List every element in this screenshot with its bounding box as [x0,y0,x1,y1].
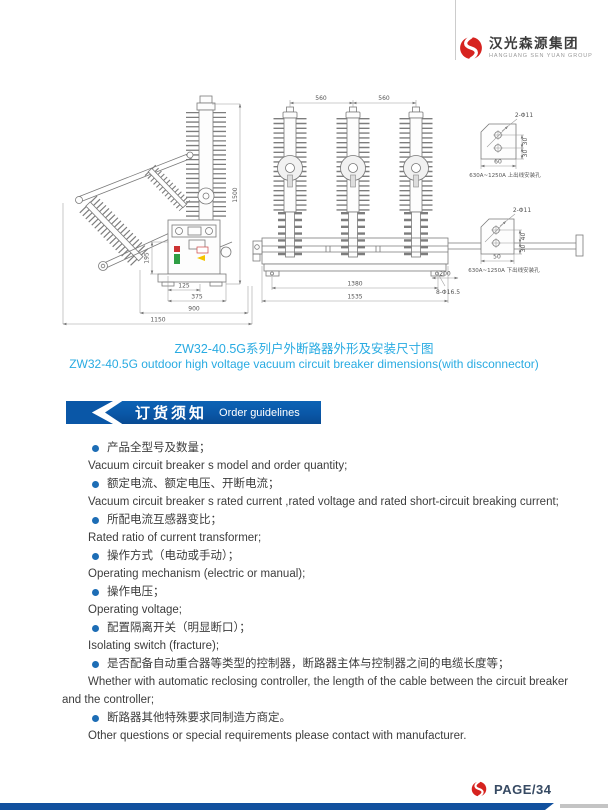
footer-bar-gray [560,804,608,808]
detail-bottom-plate: 2-Φ11 50 40 30 630A~1250A 下出线安装孔 [468,207,540,274]
brand-mark-icon [471,781,487,797]
bullet-icon [92,481,99,488]
dim-label: 900 [188,306,200,313]
figure-caption: ZW32-40.5G系列户外断路器外形及安装尺寸图 ZW32-40.5G out… [0,342,608,372]
dim-label: 2-Φ11 [515,112,534,119]
dim-label: 195 [144,252,151,264]
guideline-text-cn: 断路器其他特殊要求同制造方商定。 [107,709,291,727]
dim-label: 50 [493,254,501,261]
guideline-item-en: Operating mechanism (electric or manual)… [62,565,594,583]
guideline-item-cn: 额定电流、额定电压、开断电流； [62,475,594,493]
section-title-cn: 订货须知 [135,402,207,423]
dim-label: 1535 [347,294,362,301]
dim-label: 30 [520,245,527,253]
guideline-item-cn: 是否配备自动重合器等类型的控制器，断路器主体与控制器之间的电缆长度等； [62,655,594,673]
guideline-item-en: Whether with automatic reclosing control… [62,673,594,709]
detail-bottom-caption: 630A~1250A 下出线安装孔 [468,266,540,274]
guideline-item-en: Isolating switch (fracture); [62,637,594,655]
dim-label: 560 [378,95,390,102]
bullet-icon [92,715,99,722]
mechanism-box [168,220,232,274]
dim-label: 1500 [232,187,239,202]
figure-caption-cn: ZW32-40.5G系列户外断路器外形及安装尺寸图 [0,342,608,357]
guideline-item-en: Vacuum circuit breaker s model and order… [62,457,594,475]
guideline-text-cn: 额定电流、额定电压、开断电流； [107,475,280,493]
dim-label: 40 [520,233,527,241]
bullet-icon [92,553,99,560]
guideline-item-cn: 操作方式（电动或手动）； [62,547,594,565]
dim-label: 200 [439,271,451,278]
dim-label: 1150 [150,317,165,324]
guideline-text-cn: 是否配备自动重合器等类型的控制器，断路器主体与控制器之间的电缆长度等； [107,655,510,673]
front-view-dimensions: 1380 1535 200 8-Φ16.5 [262,266,460,303]
guideline-item-cn: 所配电流互感器变比； [62,511,594,529]
footer-bar-blue [0,803,554,810]
dim-label: 125 [178,283,190,290]
bullet-icon [92,517,99,524]
bullet-icon [92,445,99,452]
bullet-icon [92,589,99,596]
dim-label: 375 [191,294,203,301]
dim-label: 60 [494,159,502,166]
dim-label: 30 [522,150,529,158]
guideline-item-en: Other questions or special requirements … [62,727,594,745]
bullet-icon [92,661,99,668]
dim-label: 1380 [347,281,362,288]
dim-label: 560 [315,95,327,102]
footer-page-badge: PAGE/34 [471,781,551,797]
page-number: PAGE/34 [494,782,551,797]
side-view: 125 375 900 1150 195 1500 [63,96,252,324]
catalog-page: 汉光森源集团 HANGUANG SEN YUAN GROUP [0,0,608,810]
dim-label: 8-Φ16.5 [436,289,460,296]
guideline-item-en: Rated ratio of current transformer; [62,529,594,547]
guideline-text-cn: 操作方式（电动或手动）； [107,547,239,565]
detail-top-caption: 630A~1250A 上出线安装孔 [469,171,541,179]
dim-label: 30 [522,138,529,146]
guideline-text-cn: 操作电压； [107,583,165,601]
figure-caption-en: ZW32-40.5G outdoor high voltage vacuum c… [0,357,608,372]
guideline-item-cn: 配置隔离开关（明显断口）； [62,619,594,637]
dim-label: 2-Φ11 [513,207,532,214]
guidelines-list: 产品全型号及数量； Vacuum circuit breaker s model… [62,439,594,745]
guideline-text-cn: 所配电流互感器变比； [107,511,222,529]
guideline-text-cn: 配置隔离开关（明显断口）； [107,619,251,637]
guideline-text-cn: 产品全型号及数量； [107,439,211,457]
bullet-icon [92,625,99,632]
section-title-en: Order guidelines [219,407,300,419]
guideline-item-cn: 操作电压； [62,583,594,601]
detail-top-plate: 2-Φ11 60 30 30 630A~1250A 上出线安装孔 [469,112,541,179]
guideline-item-cn: 产品全型号及数量； [62,439,594,457]
guideline-item-en: Vacuum circuit breaker s rated current ,… [62,493,594,511]
guideline-item-en: Operating voltage; [62,601,594,619]
section-banner: 订货须知 Order guidelines [0,401,608,424]
banner-bar: 订货须知 Order guidelines [105,401,321,424]
technical-drawing: 125 375 900 1150 195 1500 [0,0,608,340]
guideline-item-cn: 断路器其他特殊要求同制造方商定。 [62,709,594,727]
